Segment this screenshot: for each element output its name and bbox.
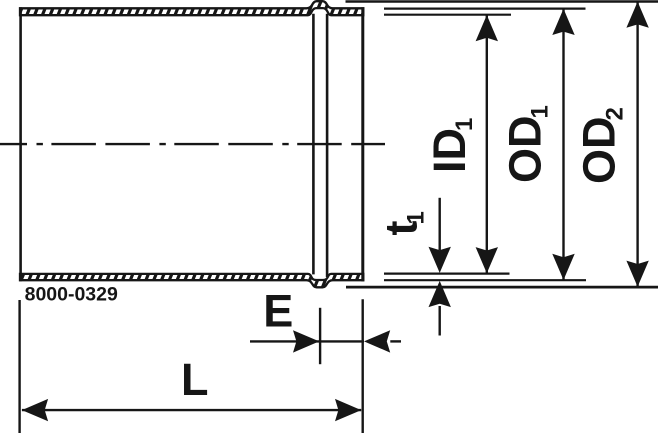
svg-text:E: E bbox=[263, 286, 293, 337]
svg-text:8000-0329: 8000-0329 bbox=[25, 284, 118, 306]
svg-text:L: L bbox=[181, 354, 209, 405]
svg-text:OD2: OD2 bbox=[573, 107, 628, 184]
svg-text:OD1: OD1 bbox=[500, 105, 554, 183]
